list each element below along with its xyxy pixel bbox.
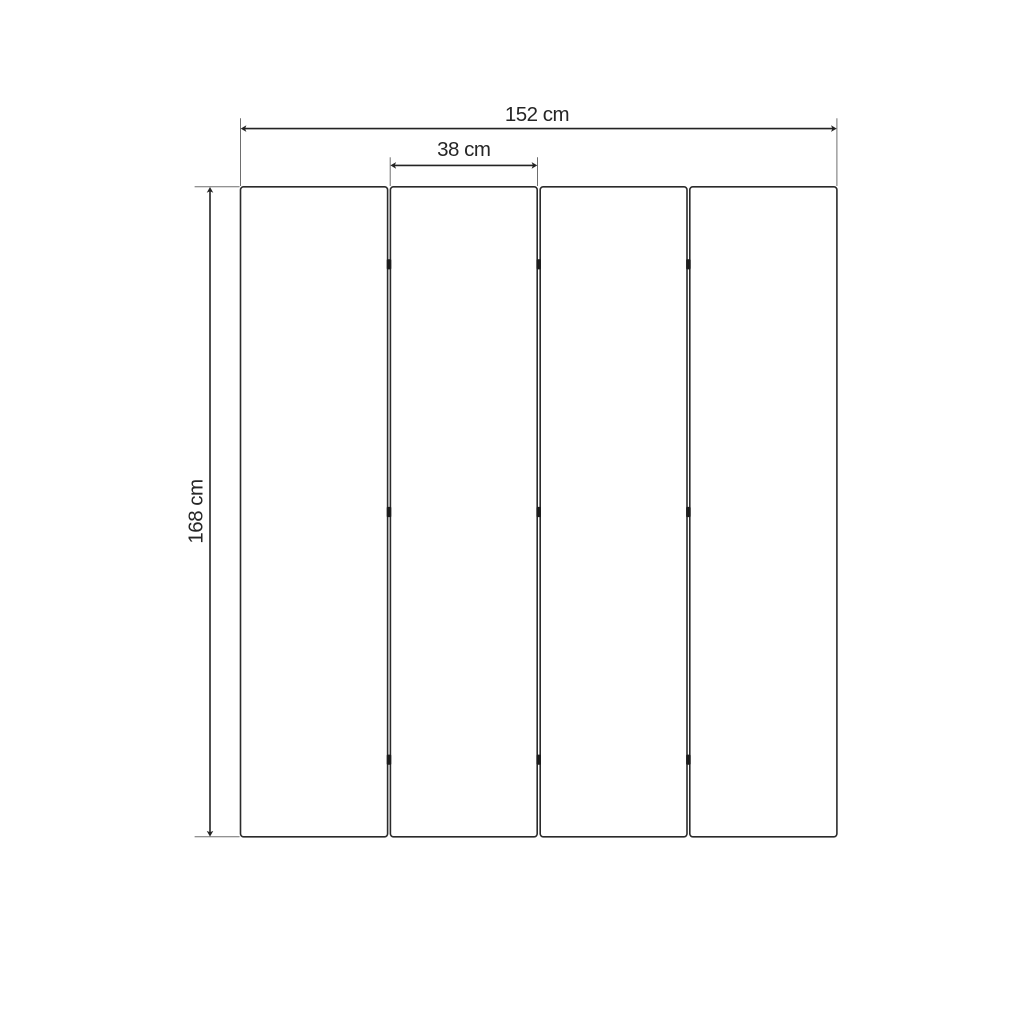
svg-text:168 cm: 168 cm	[185, 479, 208, 543]
svg-text:152 cm: 152 cm	[505, 103, 569, 126]
svg-text:38 cm: 38 cm	[437, 138, 490, 161]
